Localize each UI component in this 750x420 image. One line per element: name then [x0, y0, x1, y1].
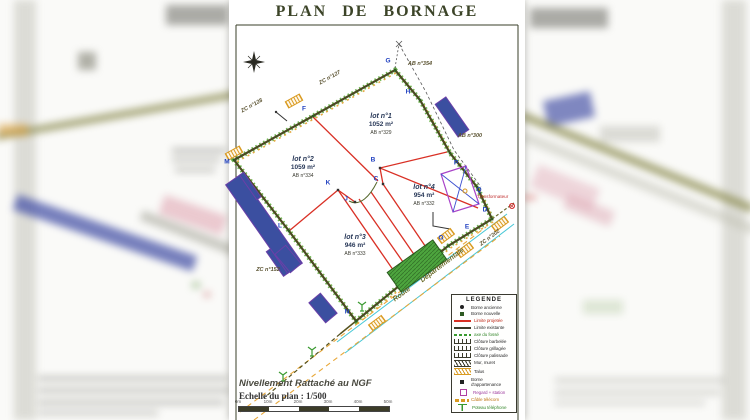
legend-box: LEGENDE Borne ancienneBorne nouvelleLimi… — [451, 294, 517, 413]
legend-symbol-dashdot — [454, 334, 471, 336]
point-label-P: P — [454, 160, 458, 167]
scale-tick-label: 0m — [235, 399, 241, 404]
legend-row: Limite projetée — [454, 318, 514, 323]
legend-row: Câble télécom — [454, 397, 514, 402]
point-label-D: D — [483, 207, 488, 214]
legend-symbol-cable — [455, 399, 469, 402]
legend-row: Talus — [454, 368, 514, 375]
point-label-H: H — [406, 89, 411, 96]
leveling-note: Nivellement Rattaché au NGF — [239, 378, 372, 389]
legend-row: Clôture palissade — [454, 353, 514, 358]
point-label-L: L — [278, 223, 282, 230]
legend-label: Borne d'appartenance — [471, 377, 514, 388]
scanned-plan-page: { "title": "PLAN DE BORNAGE", "road": { … — [0, 0, 750, 420]
legend-row: Limite existante — [454, 325, 514, 330]
legend-label: Borne nouvelle — [471, 311, 500, 316]
legend-symbol-fence — [454, 339, 471, 344]
legend-label: Limite existante — [474, 325, 504, 330]
legend-label: Mur, muret — [474, 360, 495, 365]
legend-label: Regard + station — [473, 390, 505, 395]
point-label-E: E — [465, 224, 469, 231]
legend-symbol-dot — [460, 305, 464, 309]
legend-symbol-line — [454, 327, 471, 329]
point-label-Q: Q — [476, 187, 481, 194]
legend-symbol-hatch — [454, 368, 471, 375]
point-label-M: M — [224, 159, 229, 166]
legend-symbol-square — [460, 380, 464, 384]
point-label-K: K — [326, 180, 331, 187]
legend-row: Mur, muret — [454, 360, 514, 367]
point-label-N: N — [345, 309, 350, 316]
scale-tick-label: 10m — [264, 399, 273, 404]
scale-segment — [359, 407, 389, 411]
legend-rows: Borne ancienneBorne nouvelleLimite proje… — [454, 305, 514, 414]
legend-symbol-regard — [460, 389, 467, 396]
point-label-C: C — [374, 176, 379, 183]
point-label-J: J — [344, 196, 348, 203]
legend-label: Clôture barbelée — [474, 339, 506, 344]
legend-row: Poteau téléphone — [454, 404, 514, 411]
legend-row: Borne ancienne — [454, 305, 514, 310]
legend-row: Borne d'appartenance — [454, 377, 514, 388]
scale-segment — [239, 407, 269, 411]
scale-tick-label: 40m — [354, 399, 363, 404]
scale-segment — [299, 407, 329, 411]
legend-title: LEGENDE — [454, 297, 514, 303]
legend-label: Talus — [474, 369, 484, 374]
point-label-B: B — [371, 157, 376, 164]
legend-row: axe du fossé — [454, 332, 514, 337]
legend-label: axe du fossé — [474, 332, 499, 337]
scale-tick-label: 20m — [294, 399, 303, 404]
point-label-O: O — [438, 235, 443, 242]
legend-label: Clôture palissade — [474, 353, 508, 358]
legend-row: Borne nouvelle — [454, 311, 514, 316]
scale-segment — [329, 407, 359, 411]
legend-row: Clôture grillagée — [454, 346, 514, 351]
legend-label: Clôture grillagée — [474, 346, 506, 351]
legend-label: Borne ancienne — [471, 305, 502, 310]
legend-symbol-hatch — [454, 360, 471, 367]
scale-tick-label: 50m — [384, 399, 393, 404]
legend-label: Câble télécom — [471, 397, 499, 402]
legend-symbol-fence — [454, 346, 471, 351]
legend-label: Limite projetée — [474, 318, 503, 323]
legend-symbol-line — [454, 320, 471, 322]
legend-symbol-fence — [454, 353, 471, 358]
legend-row: Clôture barbelée — [454, 339, 514, 344]
legend-symbol-tee — [458, 404, 467, 411]
legend-row: Regard + station — [454, 389, 514, 396]
point-label-G: G — [385, 58, 390, 65]
point-letters-layer: GHPQDEONLMFBCKJ — [0, 0, 750, 420]
scale-segment — [269, 407, 299, 411]
transformer-label: Transformateur — [477, 194, 508, 199]
legend-symbol-square — [460, 312, 464, 316]
point-label-F: F — [302, 106, 306, 113]
scale-tick-label: 30m — [324, 399, 333, 404]
scale-tick-labels: 0m10m20m30m40m50m — [238, 399, 398, 407]
legend-label: Poteau téléphone — [472, 405, 506, 410]
